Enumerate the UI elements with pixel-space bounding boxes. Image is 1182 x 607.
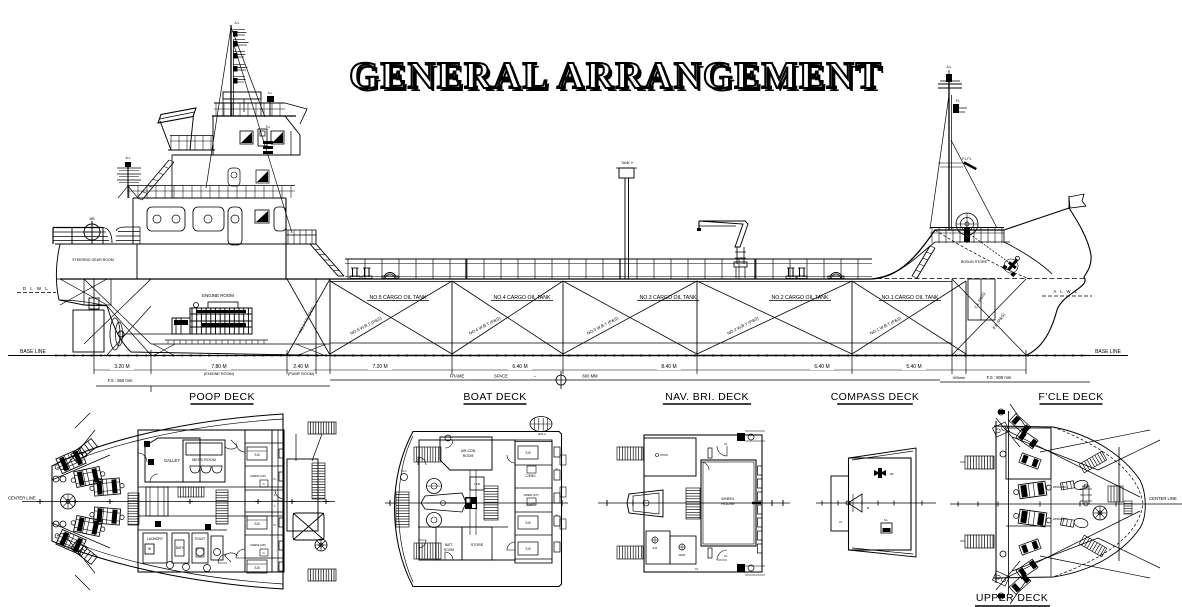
svg-text:WINDLASS: WINDLASS bbox=[1053, 485, 1067, 489]
svg-text:RF: RF bbox=[890, 472, 894, 476]
svg-text:C.: C. bbox=[263, 482, 266, 486]
svg-text:S.L: S.L bbox=[266, 125, 271, 129]
svg-text:C/ENG.: C/ENG. bbox=[526, 474, 537, 478]
svg-text:(EXH.): (EXH.) bbox=[538, 432, 546, 436]
svg-text:WINDLASS: WINDLASS bbox=[1053, 517, 1067, 521]
svg-text:3.20 M: 3.20 M bbox=[114, 364, 129, 370]
svg-text:7.20 M: 7.20 M bbox=[372, 364, 387, 370]
svg-text:900mm: 900mm bbox=[953, 376, 966, 380]
svg-text:COMPASS DECK: COMPASS DECK bbox=[831, 391, 920, 403]
svg-text:NAV. BRI. DECK: NAV. BRI. DECK bbox=[665, 391, 749, 403]
svg-text:F.S : 500 mm: F.S : 500 mm bbox=[987, 375, 1012, 380]
svg-text:A.L: A.L bbox=[126, 156, 131, 160]
svg-text:NO.5 CARGO OIL TANK: NO.5 CARGO OIL TANK bbox=[370, 295, 428, 301]
svg-text:(PUMP ROOM): (PUMP ROOM) bbox=[288, 372, 315, 376]
svg-text:BASE LINE: BASE LINE bbox=[1095, 349, 1122, 355]
svg-text:POOP DECK: POOP DECK bbox=[189, 391, 255, 403]
svg-text:A.L: A.L bbox=[234, 21, 239, 25]
svg-text:TANK V: TANK V bbox=[621, 161, 634, 165]
svg-text:6.40 M: 6.40 M bbox=[512, 364, 527, 370]
svg-text:CENTER LINE: CENTER LINE bbox=[1149, 496, 1177, 501]
svg-text:GALLEY: GALLEY bbox=[164, 458, 181, 463]
svg-text:S-B: S-B bbox=[525, 547, 530, 551]
svg-text:E.R: E.R bbox=[653, 546, 658, 550]
svg-text:A.L: A.L bbox=[946, 65, 951, 69]
svg-text:BATH: BATH bbox=[176, 546, 185, 550]
svg-text:TOILET: TOILET bbox=[194, 537, 205, 541]
svg-text:NO.1 CARGO OIL TANK: NO.1 CARGO OIL TANK bbox=[882, 295, 940, 301]
svg-text:MESS ROOM: MESS ROOM bbox=[192, 458, 216, 462]
svg-text:2.40 M: 2.40 M bbox=[293, 364, 308, 370]
svg-text:LKR: LKR bbox=[474, 482, 481, 486]
svg-text:W: W bbox=[148, 547, 151, 551]
svg-text:C.: C. bbox=[263, 551, 266, 555]
svg-text:D.: D. bbox=[556, 513, 559, 517]
svg-text:A L W L: A L W L bbox=[1053, 289, 1078, 294]
svg-text:VL.: VL. bbox=[839, 520, 843, 524]
svg-text:VL.: VL. bbox=[695, 567, 699, 571]
svg-text:NO.3 CARGO OIL TANK: NO.3 CARGO OIL TANK bbox=[640, 295, 698, 301]
svg-text:D.: D. bbox=[274, 477, 277, 481]
svg-text:6.40 M: 6.40 M bbox=[814, 364, 829, 370]
svg-text:STORE: STORE bbox=[471, 543, 484, 547]
svg-text:CREW (2P): CREW (2P) bbox=[250, 474, 266, 478]
svg-text:D.: D. bbox=[556, 467, 559, 471]
svg-text:8.40 M: 8.40 M bbox=[661, 364, 676, 370]
svg-text:VL.: VL. bbox=[724, 442, 728, 446]
svg-text:S-B: S-B bbox=[525, 521, 530, 525]
svg-text:FRAME: FRAME bbox=[450, 374, 465, 379]
svg-text:AIR-CON: AIR-CON bbox=[461, 449, 476, 453]
svg-text:W.C: W.C bbox=[401, 469, 406, 473]
svg-text:BOSUN STORE: BOSUN STORE bbox=[961, 260, 988, 264]
svg-text:S.L: S.L bbox=[268, 91, 273, 95]
svg-text:600 MM: 600 MM bbox=[582, 374, 598, 379]
svg-text:S-B: S-B bbox=[254, 566, 259, 570]
svg-text:F.S : 550 mm: F.S : 550 mm bbox=[108, 378, 133, 383]
svg-text:WB: WB bbox=[89, 217, 94, 221]
svg-text:ENGINE ROOM: ENGINE ROOM bbox=[202, 293, 234, 298]
svg-text:LAUNDRY: LAUNDRY bbox=[147, 537, 164, 541]
svg-text:S.L: S.L bbox=[884, 518, 889, 522]
svg-text:S-B: S-B bbox=[525, 451, 530, 455]
svg-text:NO.4 CARGO OIL TANK: NO.4 CARGO OIL TANK bbox=[494, 295, 552, 301]
svg-text:STEERING GEAR ROOM: STEERING GEAR ROOM bbox=[72, 258, 114, 262]
svg-text:BASE LINE: BASE LINE bbox=[20, 349, 47, 355]
svg-text:D.: D. bbox=[274, 523, 277, 527]
svg-text:S-B: S-B bbox=[254, 522, 259, 526]
svg-text:5.40 M: 5.40 M bbox=[906, 364, 921, 370]
svg-text:ROOM: ROOM bbox=[463, 454, 474, 458]
svg-text:D L W L: D L W L bbox=[23, 286, 50, 291]
svg-text:WHEEL: WHEEL bbox=[721, 497, 735, 501]
svg-text:CREW (1P): CREW (1P) bbox=[523, 493, 538, 497]
svg-text:F’CLE DECK: F’CLE DECK bbox=[1038, 391, 1103, 403]
svg-text:BATT.: BATT. bbox=[445, 543, 454, 547]
svg-text:SPACE: SPACE bbox=[494, 374, 508, 379]
svg-text:S-B: S-B bbox=[254, 453, 259, 457]
svg-text:VL.: VL. bbox=[724, 554, 728, 558]
svg-text:GENERAL ARRANGEMENT: GENERAL ARRANGEMENT bbox=[349, 55, 883, 97]
svg-text:NO.2 CARGO OIL TANK: NO.2 CARGO OIL TANK bbox=[772, 295, 830, 301]
svg-text:(ENGINE ROOM): (ENGINE ROOM) bbox=[204, 372, 235, 376]
svg-text:CREW (2P): CREW (2P) bbox=[250, 543, 266, 547]
svg-text:VENT: VENT bbox=[678, 553, 686, 557]
svg-text:CENTER LINE: CENTER LINE bbox=[8, 496, 36, 501]
svg-text:ROOM: ROOM bbox=[444, 548, 454, 552]
svg-text:F.L: F.L bbox=[956, 99, 961, 103]
svg-text:7.80 M: 7.80 M bbox=[211, 364, 226, 370]
svg-text:HOUSE: HOUSE bbox=[721, 502, 735, 506]
svg-text:UPPER DECK: UPPER DECK bbox=[976, 592, 1048, 604]
svg-text:BOAT DECK: BOAT DECK bbox=[463, 391, 526, 403]
svg-text:F.L F.L: F.L F.L bbox=[962, 157, 972, 161]
